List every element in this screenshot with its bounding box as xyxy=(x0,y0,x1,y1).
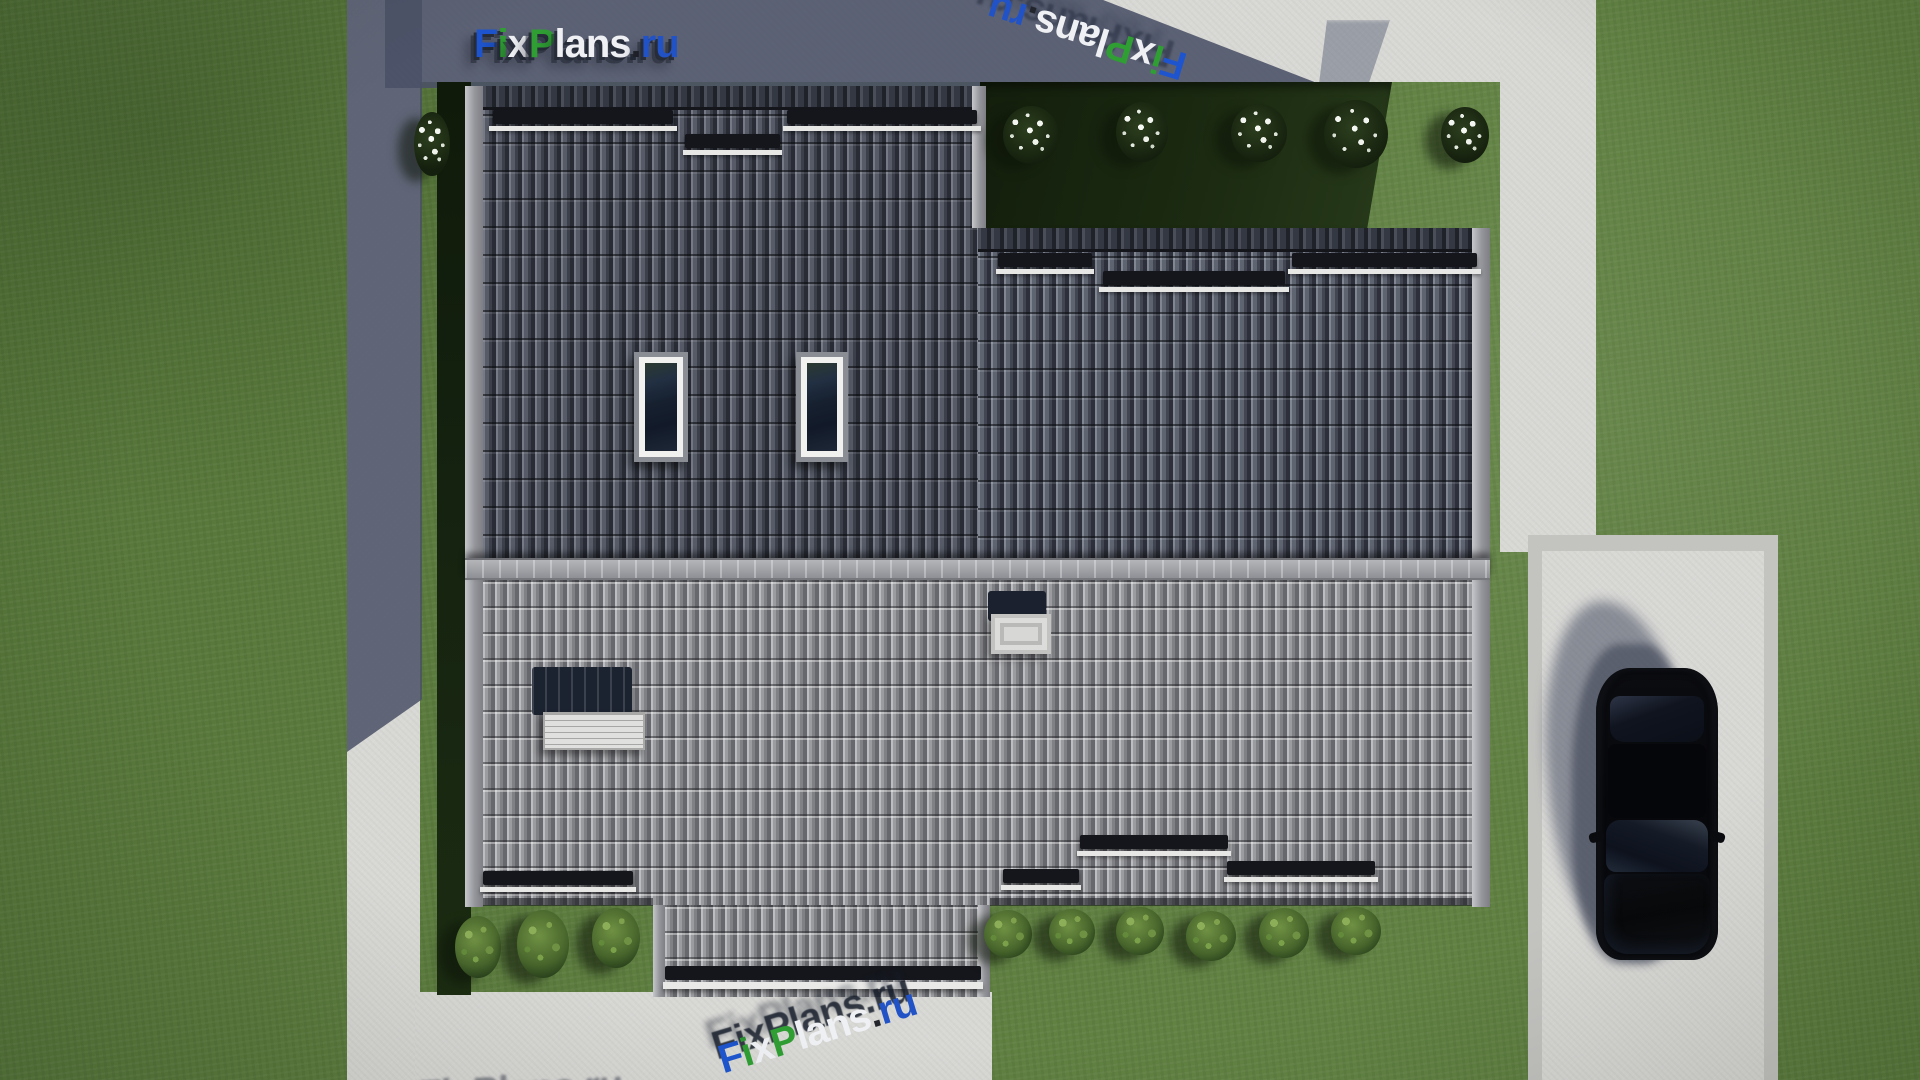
snow-guard xyxy=(787,110,977,124)
eave-line-lower-left xyxy=(483,898,653,906)
snow-guard xyxy=(493,110,673,124)
flowering-bush xyxy=(1003,106,1059,164)
roof-ridge-upper-right xyxy=(978,228,1472,252)
car-roof xyxy=(1608,744,1706,818)
green-bush xyxy=(1186,911,1236,961)
green-bush xyxy=(1259,908,1309,958)
roof-edge-mid xyxy=(972,86,986,228)
car-rear-window xyxy=(1610,696,1704,742)
roof-hatch-shadow xyxy=(532,667,632,715)
flowering-bush xyxy=(414,112,450,176)
roof-edge-left xyxy=(465,86,483,907)
flowering-bush xyxy=(1116,102,1168,162)
skylight-window xyxy=(796,352,848,462)
roof-hatch-cap xyxy=(543,712,645,750)
green-bush xyxy=(455,916,501,978)
flowering-bush xyxy=(1324,100,1388,168)
green-bush xyxy=(592,908,640,968)
porch-eave-bar xyxy=(665,966,981,980)
eave-line-lower-right xyxy=(990,898,1472,906)
render-canvas: FixPlans.ru FixPlans.ru FixPlans.ru FixP… xyxy=(0,0,1920,1080)
logo-segment: lans xyxy=(555,22,631,66)
logo-segment: i xyxy=(497,22,507,66)
snow-guard xyxy=(1292,253,1477,267)
snow-guard xyxy=(685,134,780,148)
path-right xyxy=(1500,0,1596,552)
snow-guard xyxy=(1080,835,1228,849)
flowering-bush xyxy=(1441,107,1489,163)
car-hood xyxy=(1604,874,1710,954)
chimney-cap xyxy=(991,614,1051,654)
house-shadow-left-path xyxy=(347,0,422,752)
skylight-window xyxy=(634,352,688,462)
flowering-bush xyxy=(1231,104,1287,162)
roof-wing-upper-left xyxy=(483,86,978,562)
site-logo: FixPlans.ru xyxy=(474,22,679,67)
snow-guard xyxy=(1103,271,1285,285)
snow-guard xyxy=(998,253,1092,267)
skylight-glass xyxy=(807,363,837,451)
logo-segment: F xyxy=(474,22,497,66)
roof-ridge-band xyxy=(465,558,1490,580)
logo-segment: ru xyxy=(641,22,679,66)
logo-segment: . xyxy=(631,22,641,66)
green-bush xyxy=(517,910,569,978)
snow-guard xyxy=(1003,869,1079,883)
snow-guard xyxy=(1227,861,1375,875)
green-bush xyxy=(1116,907,1164,955)
green-bush xyxy=(984,910,1032,958)
logo-segment: P xyxy=(529,22,555,66)
skylight-glass xyxy=(645,363,677,451)
porch-gutter xyxy=(663,982,983,989)
green-bush xyxy=(1049,909,1095,955)
car xyxy=(1596,666,1718,962)
roof-ridge-upper-left xyxy=(483,86,978,110)
car-windshield xyxy=(1606,820,1708,872)
logo-segment: x xyxy=(508,22,529,66)
green-bush xyxy=(1331,907,1381,955)
snow-guard xyxy=(483,871,633,885)
